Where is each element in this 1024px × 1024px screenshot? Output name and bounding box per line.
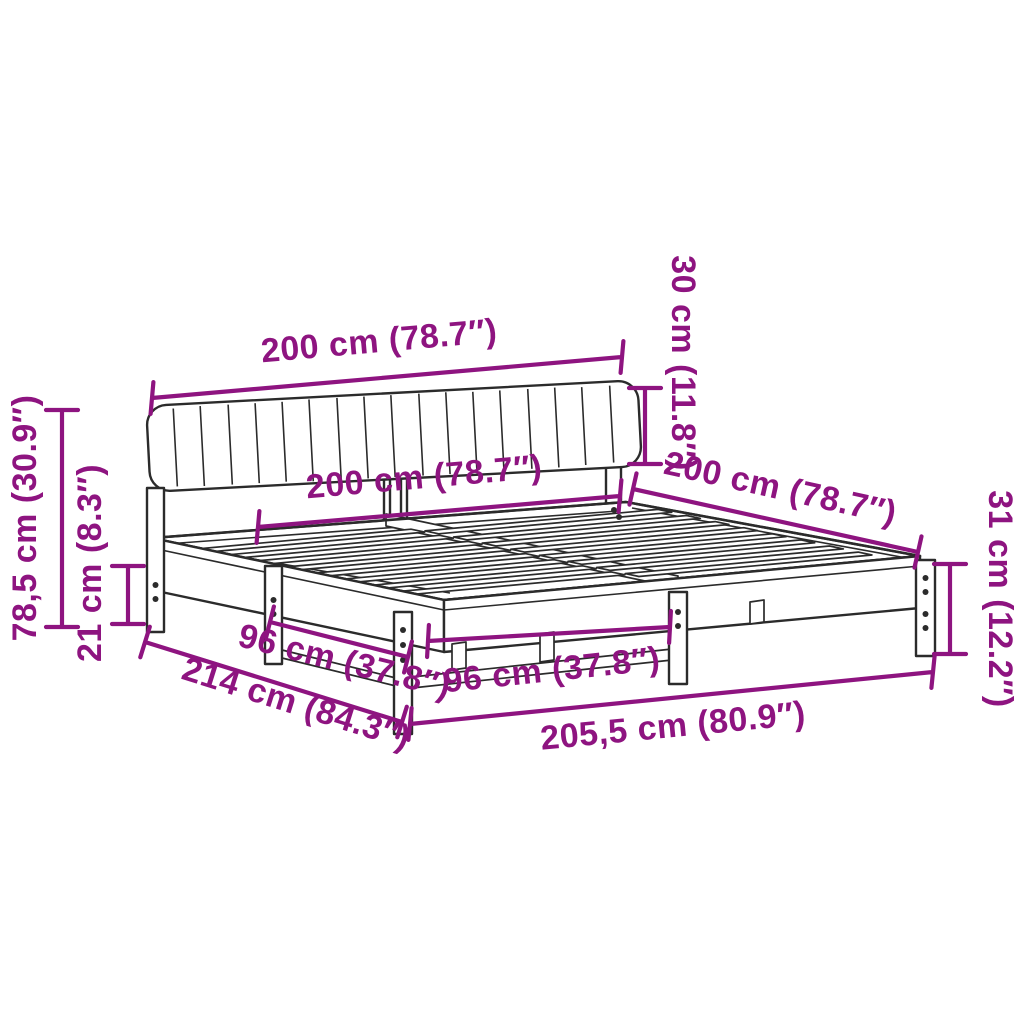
dim-headboard-width-label: 200 cm (78.7″) [259,312,498,371]
support-tab-3 [750,600,764,624]
dim-under-frame-clearance-label: 21 cm (8.3″) [71,464,109,662]
dim-total-length-label: 205,5 cm (80.9″) [539,694,808,757]
dim-total-height: 78,5 cm (30.9″) [6,395,78,642]
dim-foot-end-height: 31 cm (12.2″) [934,490,1019,707]
dim-headboard-height-label: 30 cm (11.8″) [664,255,702,471]
dim-foot-end-height-label: 31 cm (12.2″) [981,490,1019,707]
dim-under-frame-clearance: 21 cm (8.3″) [71,464,144,662]
dim-total-height-label: 78,5 cm (30.9″) [6,395,44,642]
leg-front-right [916,560,935,656]
diagram-canvas: 200 cm (78.7″) 30 cm (11.8″) 78,5 cm (30… [0,0,1024,1024]
leg-center-front [669,592,687,684]
leg-back-left [147,488,164,632]
bed-frame-dimension-diagram: 200 cm (78.7″) 30 cm (11.8″) 78,5 cm (30… [0,0,1024,1024]
